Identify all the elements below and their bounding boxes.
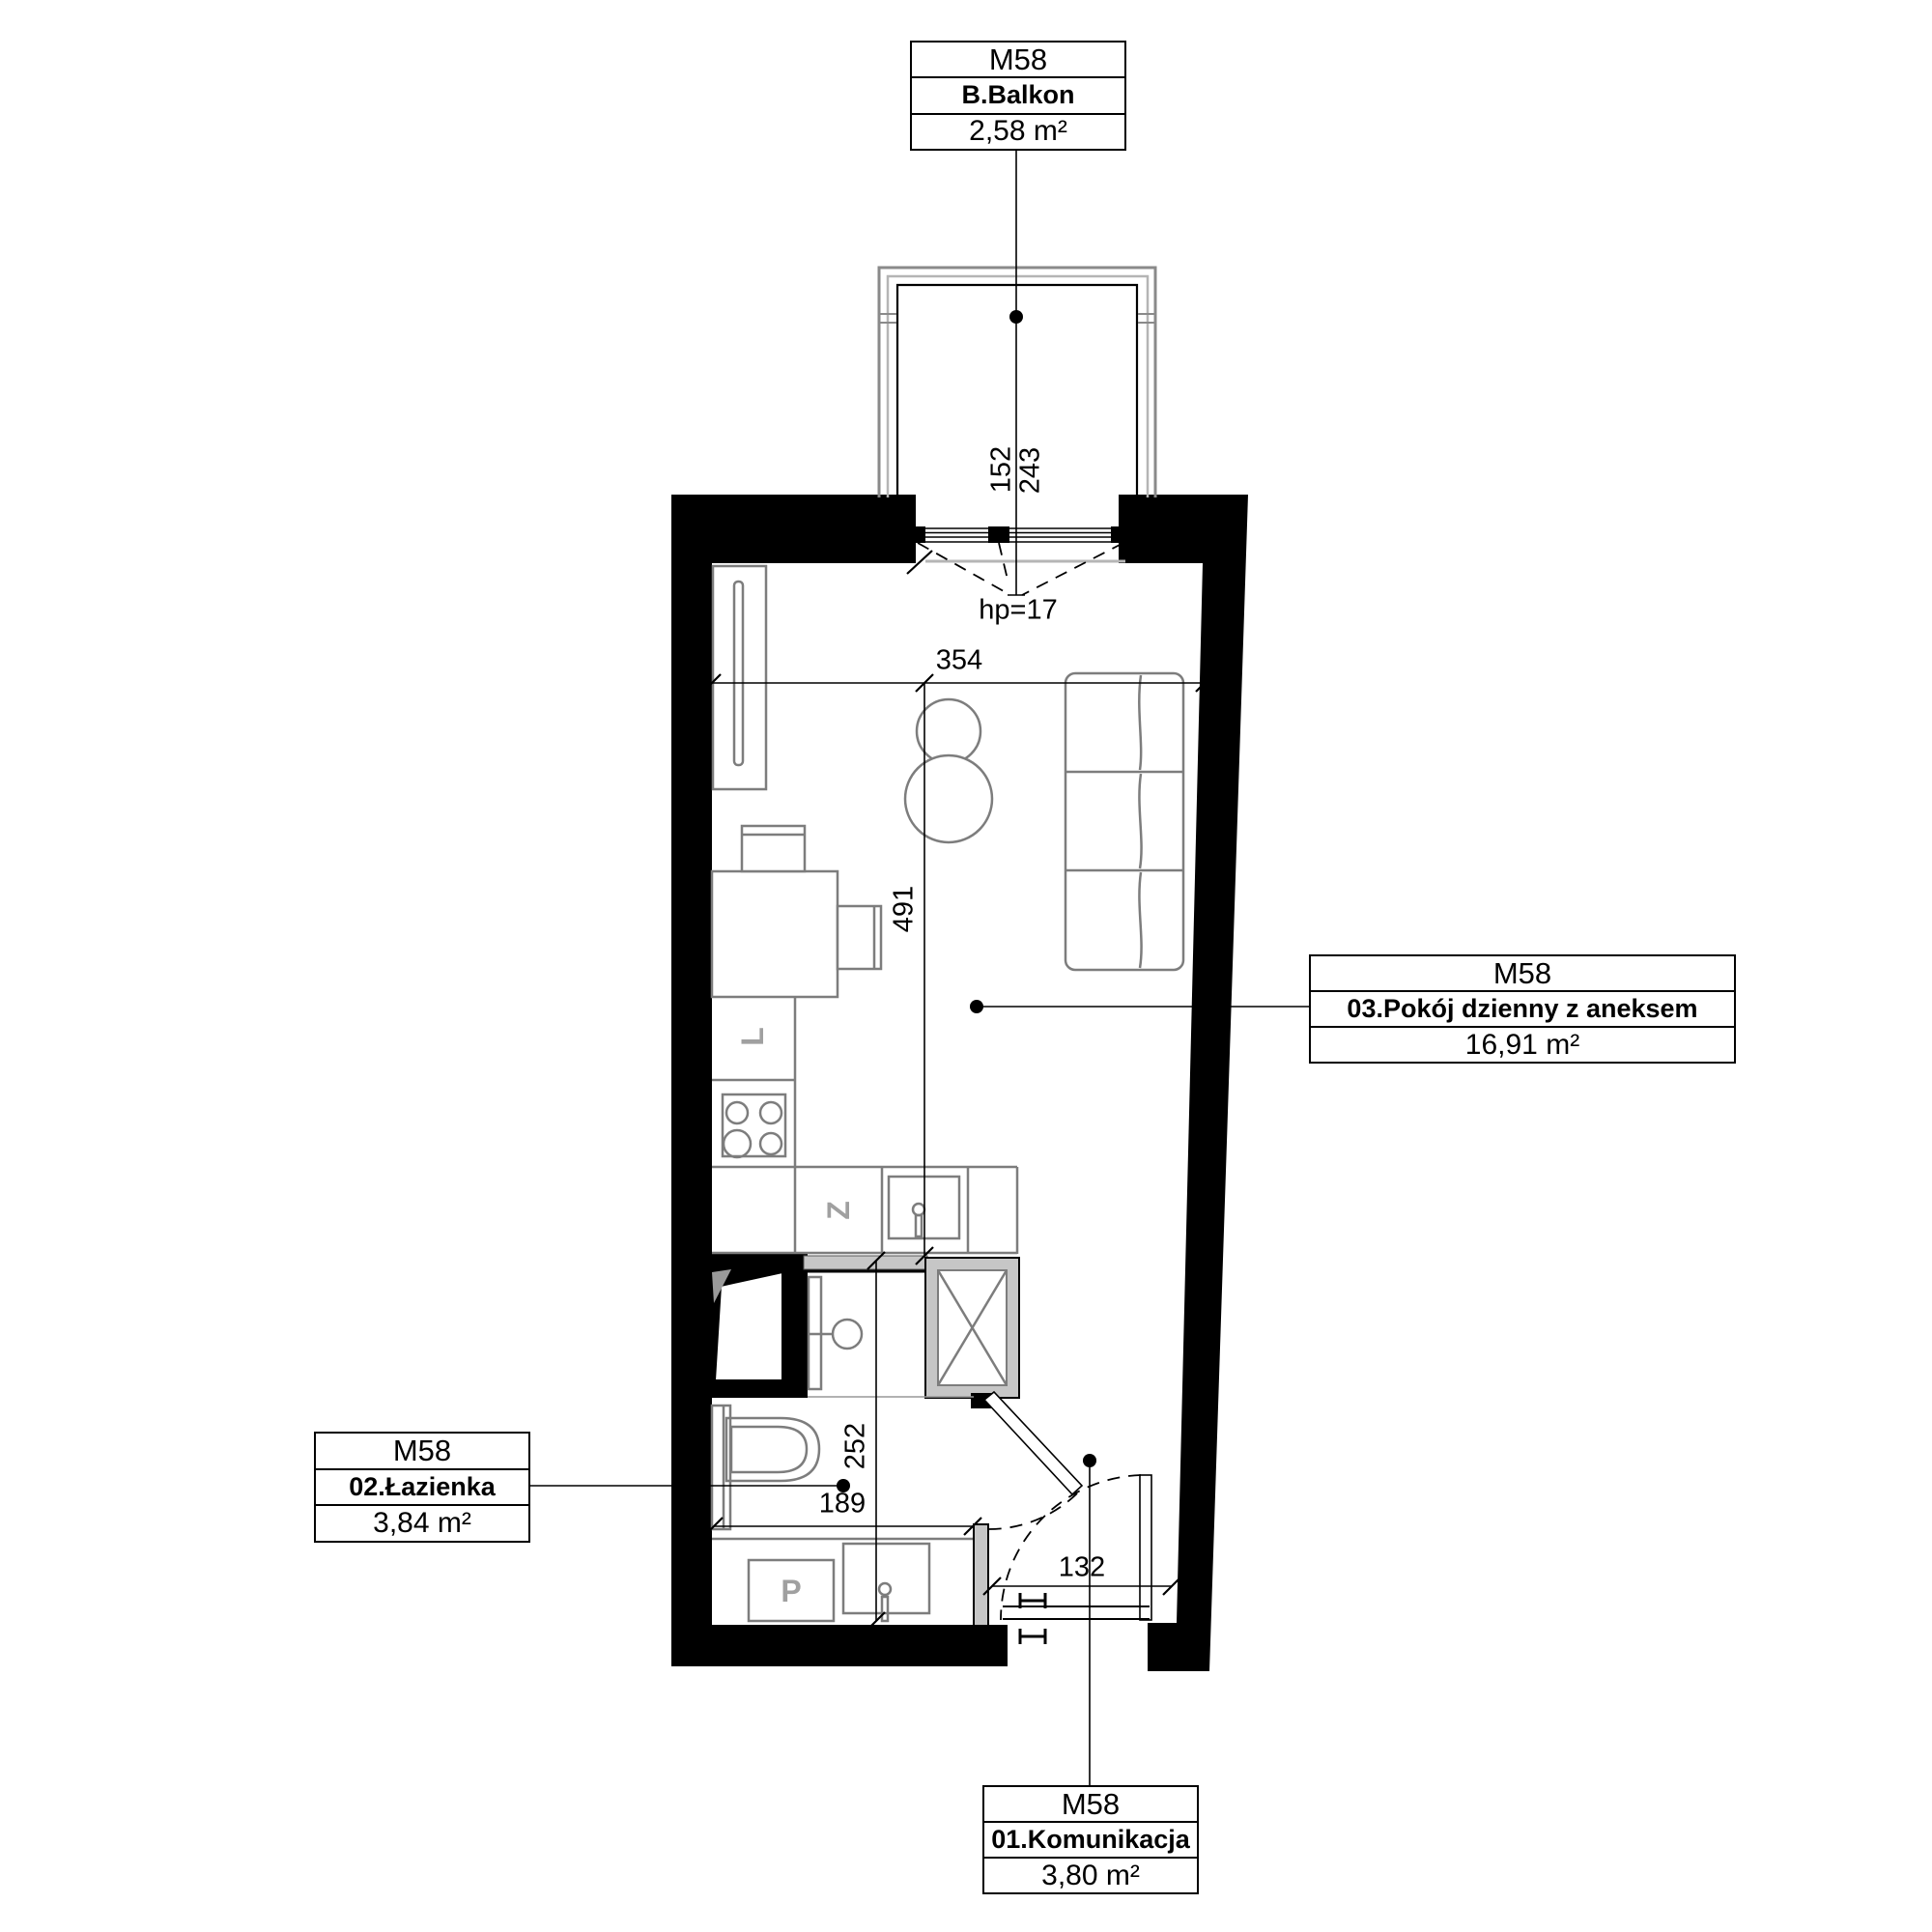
bathroom-area: 3,84 m² [316,1504,528,1541]
entry-hinge-bottom [1020,1629,1045,1644]
shower-head [833,1320,862,1349]
washbasin-tap-stem [882,1597,888,1621]
window-opening-dash-mid [999,543,1009,583]
dishwasher-label: Z [821,1201,856,1220]
wall-gray-band [804,1256,927,1269]
kitchen-tap-stem [916,1215,922,1236]
dim-balcony-width: 243 [1015,447,1047,494]
burner-1 [726,1102,748,1123]
hall-label-box: M58 01.Komunikacja 3,80 m² [982,1785,1199,1894]
window-frame [911,528,1125,542]
balcony-leader-dot [1009,310,1023,324]
dining-chair [917,699,980,763]
living-unit: M58 [1311,956,1734,990]
bathroom-niche-cabinet [715,1272,782,1380]
window-mullion-right [1111,526,1125,543]
bathroom-unit: M58 [316,1434,528,1468]
wall-right-slanted [1119,495,1248,1671]
dining-table [905,755,992,842]
living-room-furniture [712,566,1183,997]
hall-leader-dot [1083,1454,1096,1467]
bathroom-door-swing-arc [988,1493,1077,1529]
kitchen: L Z [712,997,1017,1254]
dim-bathroom-width: 189 [819,1489,866,1520]
bathroom-name: 02.Łazienka [316,1468,528,1505]
desk [712,871,838,997]
hall-area: 3,80 m² [984,1857,1197,1892]
balcony-window [911,526,1125,595]
fridge-label: L [735,1027,770,1046]
living-label-box: M58 03.Pokój dzienny z aneksem 16,91 m² [1309,954,1736,1064]
living-name: 03.Pokój dzienny z aneksem [1311,990,1734,1026]
entry-door-swing-arc [1001,1475,1141,1620]
wardrobe [713,566,766,789]
dim-living-width: 354 [936,645,982,677]
desk-chair-top [742,826,805,871]
kitchen-tap [913,1204,924,1215]
burner-4 [760,1133,781,1154]
bathroom-door-leaf [984,1392,1082,1494]
washbasin [843,1544,929,1613]
hall-unit: M58 [984,1787,1197,1821]
window-mullion-left [911,526,925,543]
balcony-name: B.Balkon [912,76,1124,112]
window-opening-dash-right [1022,543,1123,595]
dim-living-length: 491 [889,886,921,932]
bathroom-label-box: M58 02.Łazienka 3,84 m² [314,1432,530,1543]
balcony-unit: M58 [912,43,1124,76]
entry-door-leaf [1140,1475,1151,1620]
floor-plan: L Z P [0,0,1932,1932]
dim-hall-width: 132 [1059,1552,1105,1584]
burner-2 [760,1102,781,1123]
balcony-area: 2,58 m² [912,113,1124,149]
living-area: 16,91 m² [1311,1026,1734,1062]
dim-window-sill: hp=17 [979,595,1057,627]
sofa [1065,673,1183,970]
washbasin-tap [879,1583,891,1595]
window-mullion-middle [988,526,1009,543]
doors [984,1392,1151,1644]
burner-3 [724,1130,751,1157]
washer-label: P [781,1574,801,1608]
door-post [974,1524,988,1626]
balcony-label-box: M58 B.Balkon 2,58 m² [910,41,1126,151]
hall-name: 01.Komunikacja [984,1821,1197,1857]
dim-bathroom-length: 252 [840,1423,872,1469]
dim-balcony-depth: 152 [986,446,1018,493]
living-leader-dot [970,1000,983,1013]
